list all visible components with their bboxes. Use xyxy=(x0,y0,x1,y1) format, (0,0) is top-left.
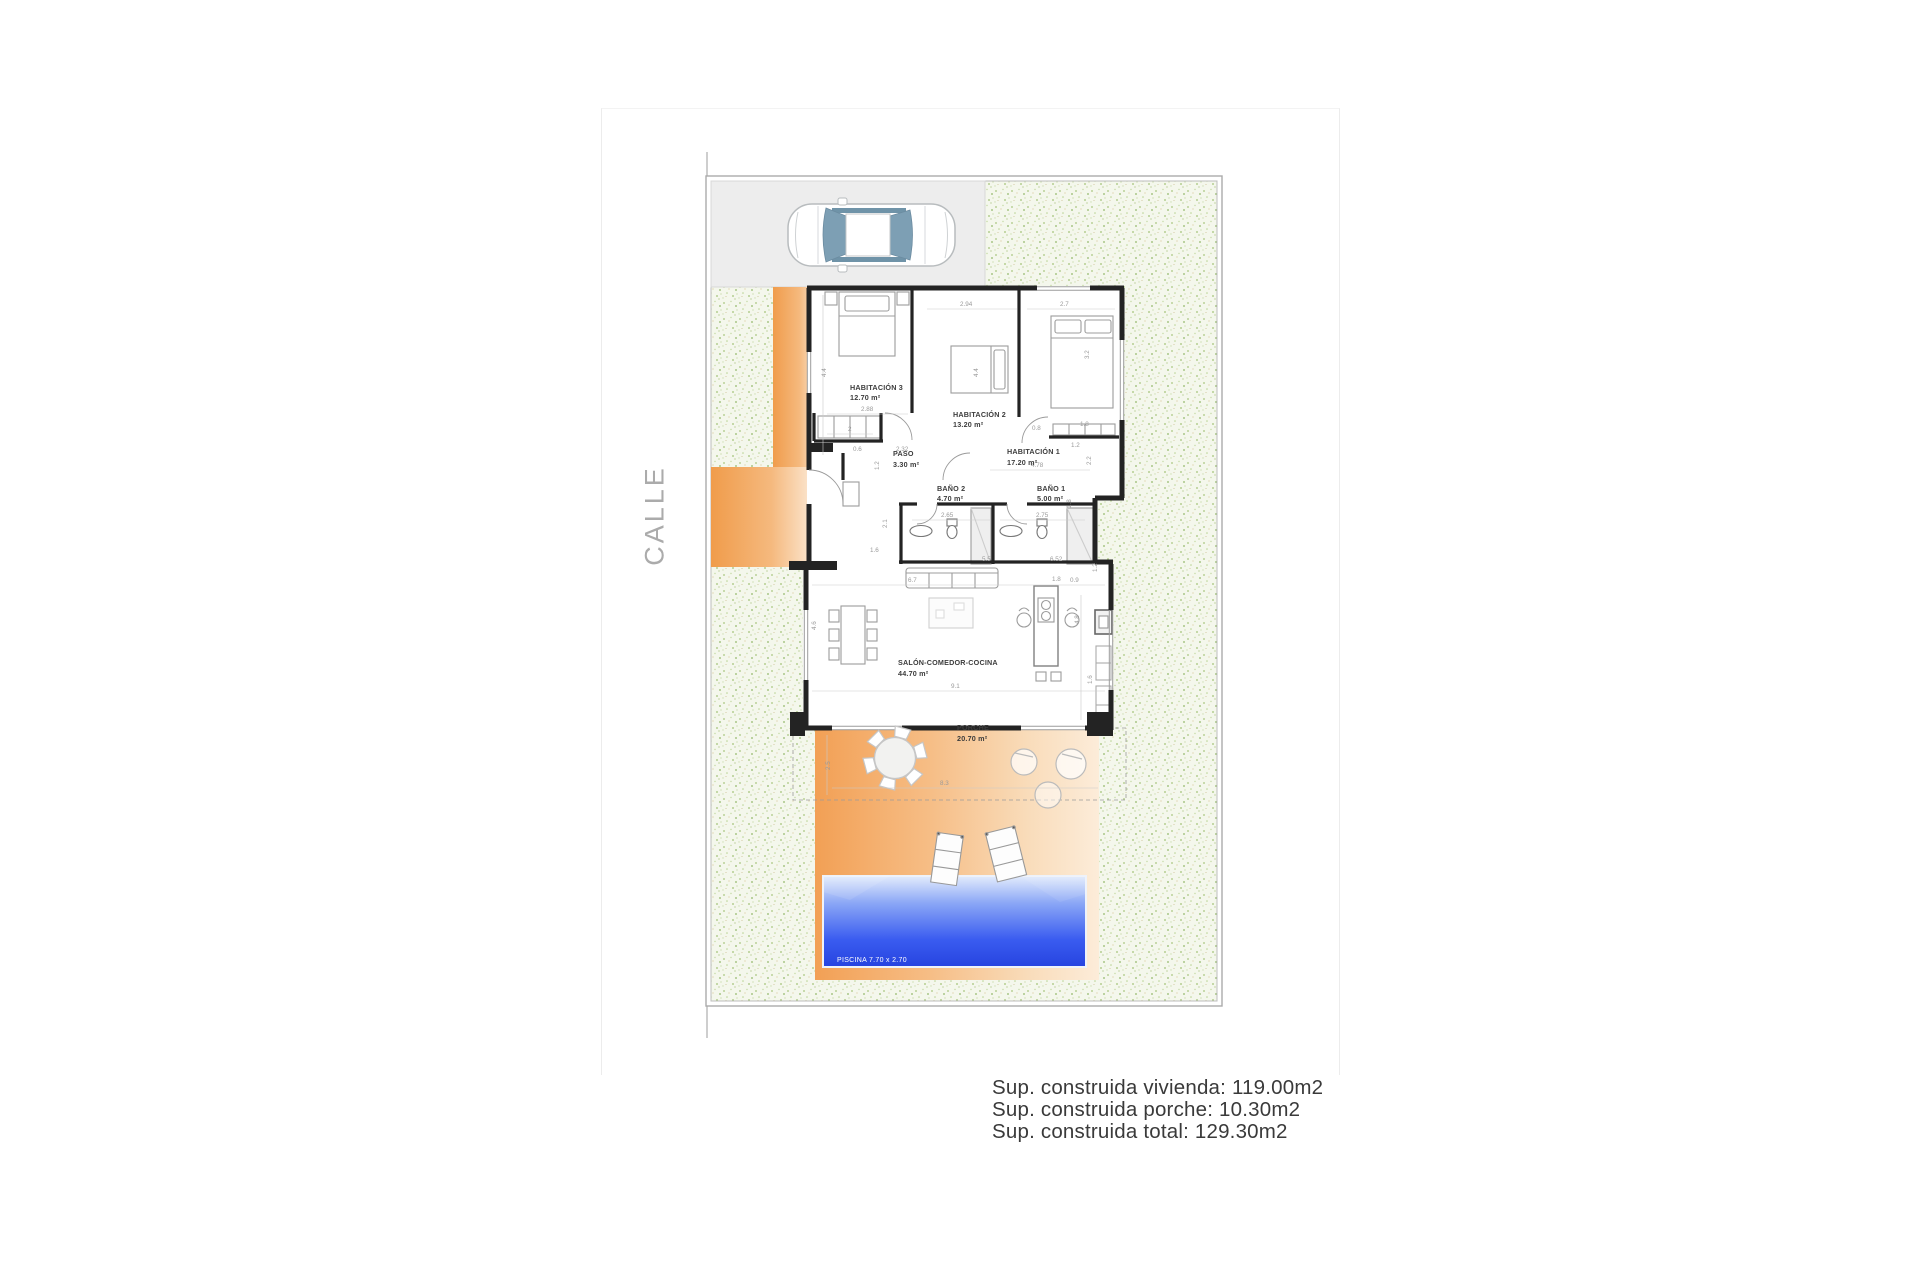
dimension-label: 0.6 xyxy=(853,446,862,453)
dimension-label: 1.6 xyxy=(1087,675,1094,684)
room-name: HABITACIÓN 2 xyxy=(953,410,1006,419)
dimension-label: 4.4 xyxy=(821,368,828,377)
rug xyxy=(929,598,973,628)
pool: PISCINA 7.70 x 2.70 xyxy=(823,876,1086,967)
dimension-label: 4.8 xyxy=(1074,615,1081,624)
dining-table-icon xyxy=(829,606,877,664)
dimension-label: 1.2 xyxy=(874,461,881,470)
room-bano-1: BAÑO 1 5.00 m² xyxy=(1037,484,1065,503)
dimension-label: 0.8 xyxy=(1032,425,1041,432)
street-label: CALLE xyxy=(640,454,671,578)
dimension-label: 2.2 xyxy=(1086,456,1093,465)
dimension-label: 2.65 xyxy=(941,512,954,519)
dimension-label: 2.94 xyxy=(960,301,973,308)
room-name: BAÑO 1 xyxy=(1037,484,1065,493)
room-name: HABITACIÓN 3 xyxy=(850,383,903,392)
summary-total: Sup. construida total: 129.30m2 xyxy=(992,1121,1323,1142)
room-name: SALÓN-COMEDOR-COCINA xyxy=(898,658,998,667)
dimension-label: 2.5 xyxy=(825,761,832,770)
dimension-label: 2 xyxy=(848,426,852,433)
dimension-label: 2.75 xyxy=(1036,512,1049,519)
room-bano-2: BAÑO 2 4.70 m² xyxy=(937,484,965,503)
room-area: 3.30 m² xyxy=(893,460,920,469)
dimension-label: 6.7 xyxy=(908,577,917,584)
summary-vivienda: Sup. construida vivienda: 119.00m2 xyxy=(992,1077,1323,1098)
room-area: 4.70 m² xyxy=(937,494,964,503)
dimension-label: 1.2 xyxy=(1092,563,1099,572)
dimension-label: 1.6 xyxy=(870,547,879,554)
dimension-label: 3.2 xyxy=(1084,350,1091,359)
room-area: 12.70 m² xyxy=(850,393,881,402)
dimension-label: 1.8 xyxy=(1052,576,1061,583)
dimension-label: 4.4 xyxy=(973,368,980,377)
room-area: 20.70 m² xyxy=(957,734,988,743)
pool-label: PISCINA 7.70 x 2.70 xyxy=(837,957,907,964)
room-name: HABITACIÓN 1 xyxy=(1007,447,1060,456)
room-area: 13.20 m² xyxy=(953,420,984,429)
dimension-label: 8.3 xyxy=(940,780,949,787)
dimension-label: 5.5 xyxy=(982,556,991,563)
dimension-label: 4.6 xyxy=(811,621,818,630)
floor-plan-svg: PISCINA 7.70 x 2.70 xyxy=(690,140,1240,1060)
dimension-label: 6.52 xyxy=(1050,556,1063,563)
dimension-label: 2.88 xyxy=(861,406,874,413)
dimension-label: 2.1 xyxy=(882,519,889,528)
room-name: BAÑO 2 xyxy=(937,484,965,493)
dimension-label: 1.8 xyxy=(1066,499,1073,508)
room-area: 5.00 m² xyxy=(1037,494,1064,503)
room-area: 44.70 m² xyxy=(898,669,929,678)
dimension-label: 2.7 xyxy=(1060,301,1069,308)
summary-porche: Sup. construida porche: 10.30m2 xyxy=(992,1099,1323,1120)
room-name: PASO xyxy=(893,449,914,458)
dimension-label: 1.8 xyxy=(1080,421,1089,428)
dimension-label: 1.2 xyxy=(1071,442,1080,449)
bed-icon xyxy=(1051,316,1113,408)
room-area: 17.20 m² xyxy=(1007,458,1038,467)
surface-summary: Sup. construida vivienda: 119.00m2 Sup. … xyxy=(992,1077,1323,1143)
car-top-view-icon xyxy=(788,198,955,272)
dimension-label: 9.1 xyxy=(951,683,960,690)
room-name: PORCHE xyxy=(957,723,989,732)
dimension-label: 0.9 xyxy=(1070,577,1079,584)
hall-closet xyxy=(843,482,859,506)
